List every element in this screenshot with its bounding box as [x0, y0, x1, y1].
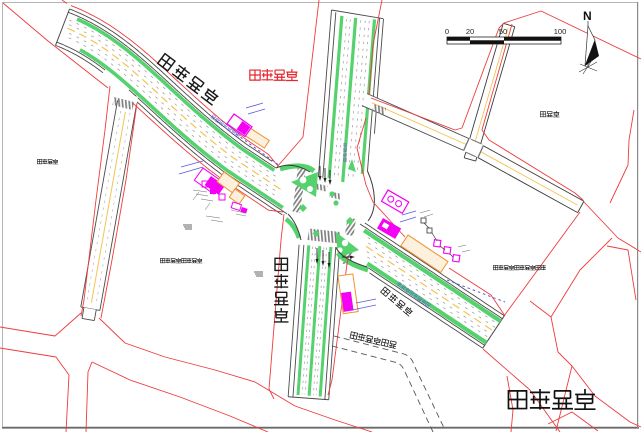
svg-text:0: 0: [445, 27, 449, 36]
svg-text:50: 50: [499, 27, 507, 36]
svg-text:N: N: [583, 9, 592, 23]
svg-text:100: 100: [554, 27, 567, 36]
svg-text:20: 20: [466, 27, 474, 36]
